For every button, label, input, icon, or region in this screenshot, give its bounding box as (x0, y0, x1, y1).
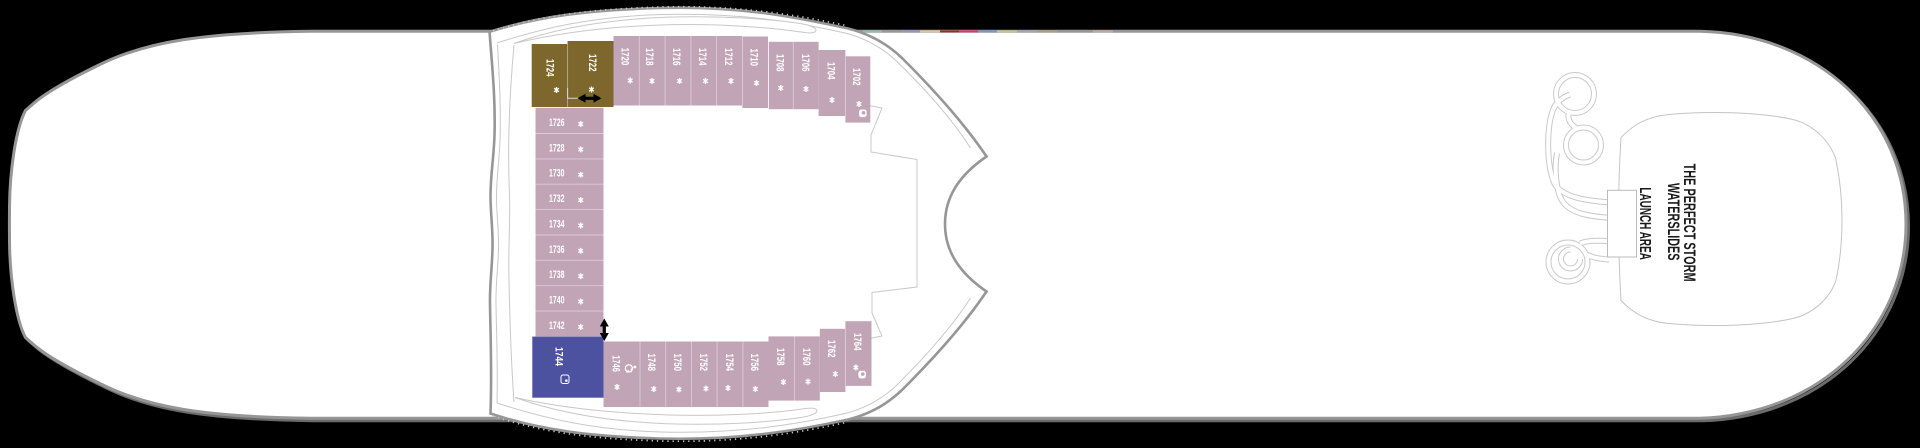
svg-text:WATERSLIDES: WATERSLIDES (1664, 183, 1683, 261)
svg-text:1764: 1764 (851, 333, 863, 351)
svg-text:1722: 1722 (586, 54, 598, 72)
svg-text:1728: 1728 (549, 142, 565, 154)
svg-text:1716: 1716 (670, 48, 682, 66)
svg-text:1744: 1744 (553, 347, 565, 367)
svg-text:1748: 1748 (645, 354, 657, 372)
svg-text:1724: 1724 (544, 59, 556, 77)
svg-text:1718: 1718 (643, 48, 655, 66)
svg-text:1732: 1732 (549, 193, 565, 205)
svg-text:1726: 1726 (549, 117, 565, 129)
svg-text:1752: 1752 (697, 354, 709, 372)
svg-text:1750: 1750 (671, 354, 683, 372)
svg-text:1702: 1702 (850, 68, 862, 86)
svg-text:1710: 1710 (748, 49, 760, 67)
svg-text:1754: 1754 (723, 354, 735, 372)
svg-text:1708: 1708 (774, 54, 786, 72)
svg-text:1740: 1740 (549, 295, 565, 307)
svg-text:LAUNCH AREA: LAUNCH AREA (1636, 187, 1653, 260)
svg-text:1720: 1720 (619, 48, 631, 65)
svg-text:1738: 1738 (549, 269, 565, 281)
svg-text:1758: 1758 (774, 348, 786, 366)
svg-text:1746: 1746 (609, 355, 621, 372)
svg-text:1714: 1714 (696, 48, 708, 66)
svg-text:1730: 1730 (549, 168, 565, 180)
svg-text:1736: 1736 (549, 244, 565, 256)
svg-text:1756: 1756 (748, 354, 760, 372)
svg-text:1734: 1734 (549, 219, 565, 231)
svg-text:1762: 1762 (825, 340, 837, 358)
svg-text:1760: 1760 (800, 348, 812, 366)
svg-text:1706: 1706 (799, 54, 811, 72)
svg-text:1742: 1742 (549, 320, 565, 332)
svg-text:1712: 1712 (722, 48, 734, 66)
svg-text:1704: 1704 (825, 62, 837, 80)
